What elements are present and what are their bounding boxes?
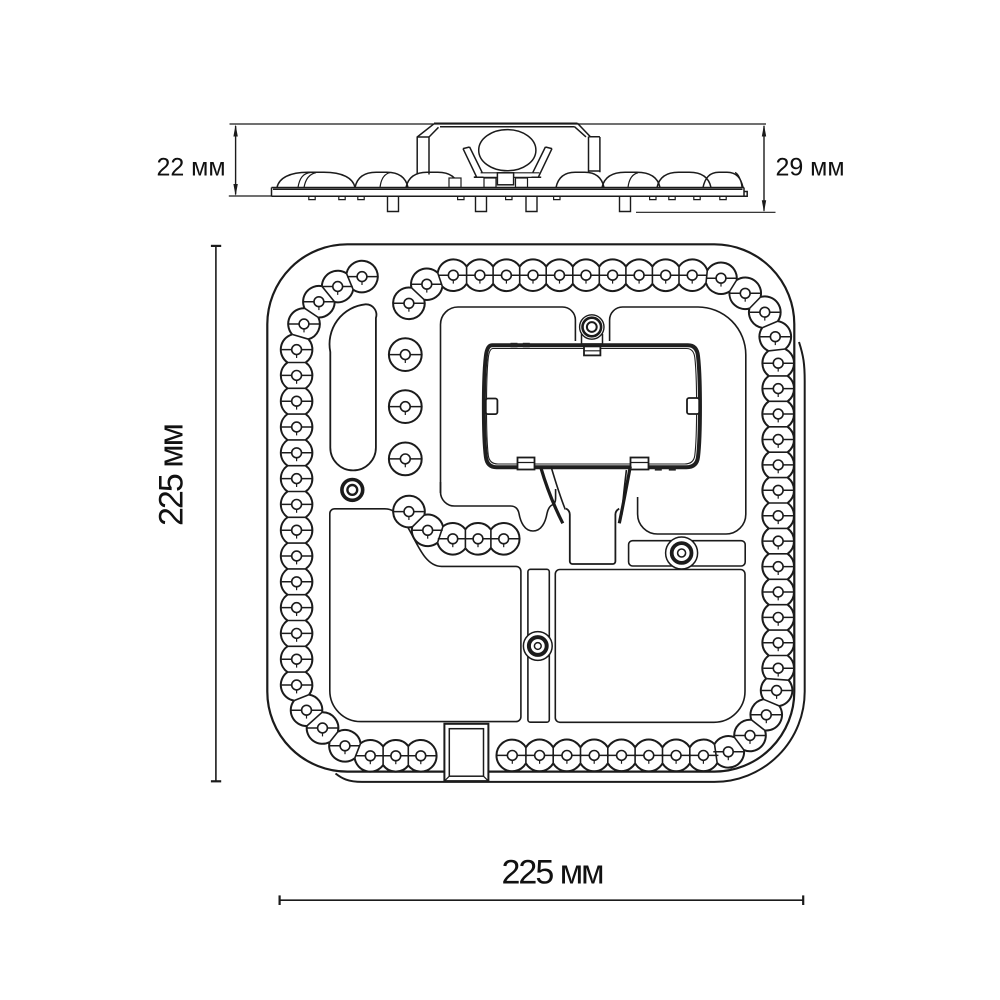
svg-text:22 мм: 22 мм: [157, 154, 226, 182]
svg-text:225 мм: 225 мм: [153, 423, 191, 526]
svg-text:29 мм: 29 мм: [776, 154, 845, 182]
svg-text:225 мм: 225 мм: [502, 854, 605, 892]
